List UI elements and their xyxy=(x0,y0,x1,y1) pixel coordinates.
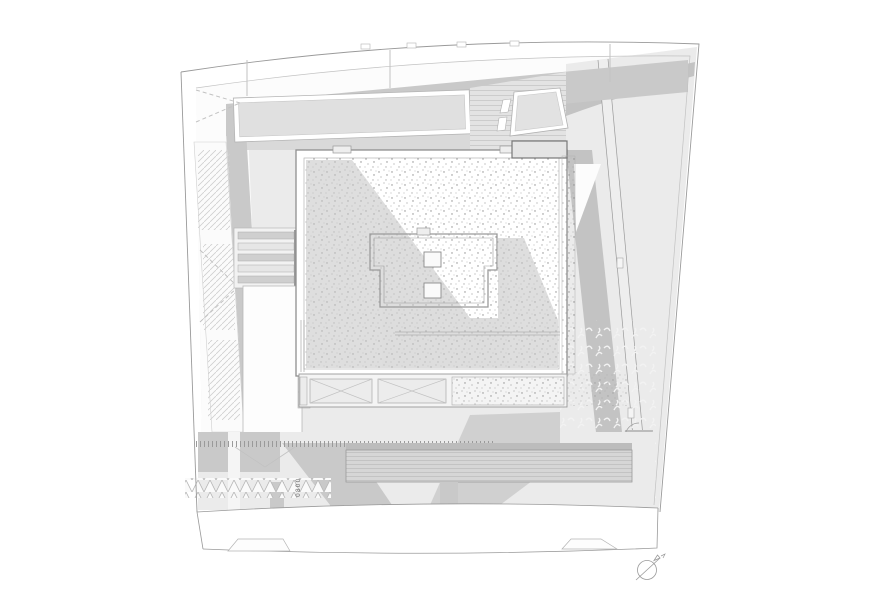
equipment-label: 0800 xyxy=(295,478,302,497)
curb-ramp-left xyxy=(228,539,290,551)
parapet-clip xyxy=(333,146,351,153)
planter-strip xyxy=(562,156,575,374)
lower-roof xyxy=(243,286,302,434)
vent-box-2 xyxy=(378,379,446,403)
roof-plan-drawing: 0800 xyxy=(0,0,885,605)
vent-box-1 xyxy=(310,379,372,403)
roof-hatch-1 xyxy=(424,252,441,267)
skylight-strip xyxy=(233,90,470,142)
louver-grate xyxy=(234,228,300,288)
main-roof xyxy=(296,141,575,376)
roof-access-box xyxy=(512,141,567,158)
street xyxy=(197,504,658,553)
gravel-cell xyxy=(452,377,564,405)
site-plan-canvas: 0800 xyxy=(0,0,885,605)
stair-sawtooth xyxy=(185,478,331,498)
north-arrow-icon xyxy=(636,554,665,580)
gravel-apron xyxy=(567,372,627,406)
roof-hatch-2 xyxy=(424,283,441,298)
x-brace-vents xyxy=(299,372,627,407)
